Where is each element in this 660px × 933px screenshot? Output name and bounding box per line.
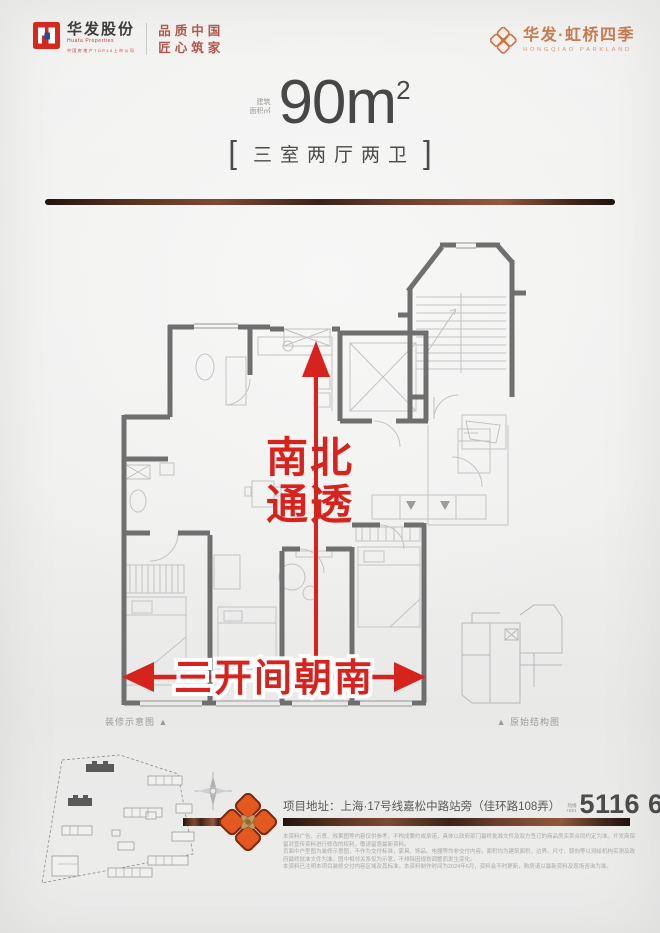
disclaimer-line: 本资料已注明本项目装修交付内容区域及其标准，本资料制作时间为2024年6月，资料… xyxy=(283,864,635,872)
project-name: 华发·虹桥四季 xyxy=(523,27,635,45)
siteplan-buildings xyxy=(52,776,194,877)
disclaimer-line: 页面中户型图为装修示意图，不作为交付标准，家具、饰品、电器等均非交付内容。面积均… xyxy=(283,849,635,864)
copper-divider-top xyxy=(45,199,615,205)
arrow-right-icon xyxy=(394,662,426,692)
area-label-line1: 建筑 xyxy=(256,98,270,107)
emblem-flower-icon xyxy=(219,793,277,851)
slogan-line-1: 品质中国 xyxy=(158,23,224,40)
floorplan-canvas: 南北 通透 三开间朝南 装修示意图 ▲ ▲ 原始结构图 xyxy=(0,225,660,730)
hotline-area-code: +021 xyxy=(566,808,576,813)
mini-structural-plan xyxy=(462,605,562,703)
siteplan-sketch xyxy=(28,752,208,907)
slogan-line-2: 匠心筑家 xyxy=(158,40,224,57)
area-exponent: 2 xyxy=(396,77,410,103)
bracket-left: [ xyxy=(228,137,237,169)
caption-original-structure: ▲ 原始结构图 xyxy=(497,716,560,727)
disclaimer-block: 本资料广告、示意、效果图等内容仅供参考，不构成要约或承诺，具体以政府部门最终批准… xyxy=(283,834,635,872)
caption-decorated-plan: 装修示意图 ▲ xyxy=(105,716,168,727)
area-value: 90m xyxy=(278,72,396,134)
area-label: 建筑 面积㎡ xyxy=(249,98,270,116)
disclaimer-line: 本资料广告、示意、效果图等内容仅供参考，不构成要约或承诺，具体以政府部门最终批准… xyxy=(283,834,635,849)
tag-north-south-line2: 通透 xyxy=(266,481,354,528)
copper-bar-left xyxy=(183,818,221,826)
area-row: 建筑 面积㎡ 90m 2 xyxy=(0,72,660,134)
huafa-logo-icon xyxy=(33,22,60,49)
brand-right: 华发·虹桥四季 HONGQIAO PARKLAND xyxy=(490,27,635,54)
bracket-right: ] xyxy=(423,137,432,169)
address-text: 上海·17号线嘉松中路站旁（佳环路108弄） xyxy=(341,800,561,818)
layout-line: [ 三室两厅两卫 ] xyxy=(0,138,660,168)
poster-page: 华发股份 Huafa Properties 中国房地产TOP10上市公司 品质中… xyxy=(0,0,660,933)
hotline-number: 5116 6677 xyxy=(579,791,660,818)
area-label-line2: 面积㎡ xyxy=(249,107,270,116)
address-label: 项目地址： xyxy=(283,800,341,818)
brand-left-text: 华发股份 Huafa Properties 中国房地产TOP10上市公司 xyxy=(67,22,135,54)
brand-slogan: 品质中国 匠心筑家 xyxy=(158,22,224,57)
header-divider xyxy=(146,23,147,55)
brand-name: 华发股份 xyxy=(67,22,135,38)
copper-bar-right xyxy=(283,818,630,826)
brand-right-text: 华发·虹桥四季 HONGQIAO PARKLAND xyxy=(523,27,635,54)
brand-subline: 中国房地产TOP10上市公司 xyxy=(67,48,135,54)
hero-block: 建筑 面积㎡ 90m 2 [ 三室两厅两卫 ] xyxy=(0,72,660,168)
brand-name-en: Huafa Properties xyxy=(67,38,135,45)
project-flower-icon xyxy=(490,27,517,54)
address-row: 项目地址： 上海·17号线嘉松中路站旁（佳环路108弄） 热线 +021 511… xyxy=(283,791,630,818)
hotline-label-block: 热线 +021 xyxy=(566,803,576,813)
siteplan-dark-buildings xyxy=(68,761,114,806)
arrow-left-icon xyxy=(122,662,154,692)
project-name-en: HONGQIAO PARKLAND xyxy=(523,46,635,54)
tag-three-bays-south: 三开间朝南 xyxy=(174,658,374,700)
brand-left: 华发股份 Huafa Properties 中国房地产TOP10上市公司 品质中… xyxy=(33,22,224,57)
tag-north-south-line1: 南北 xyxy=(266,434,354,481)
layout-text: 三室两厅两卫 xyxy=(253,140,415,167)
